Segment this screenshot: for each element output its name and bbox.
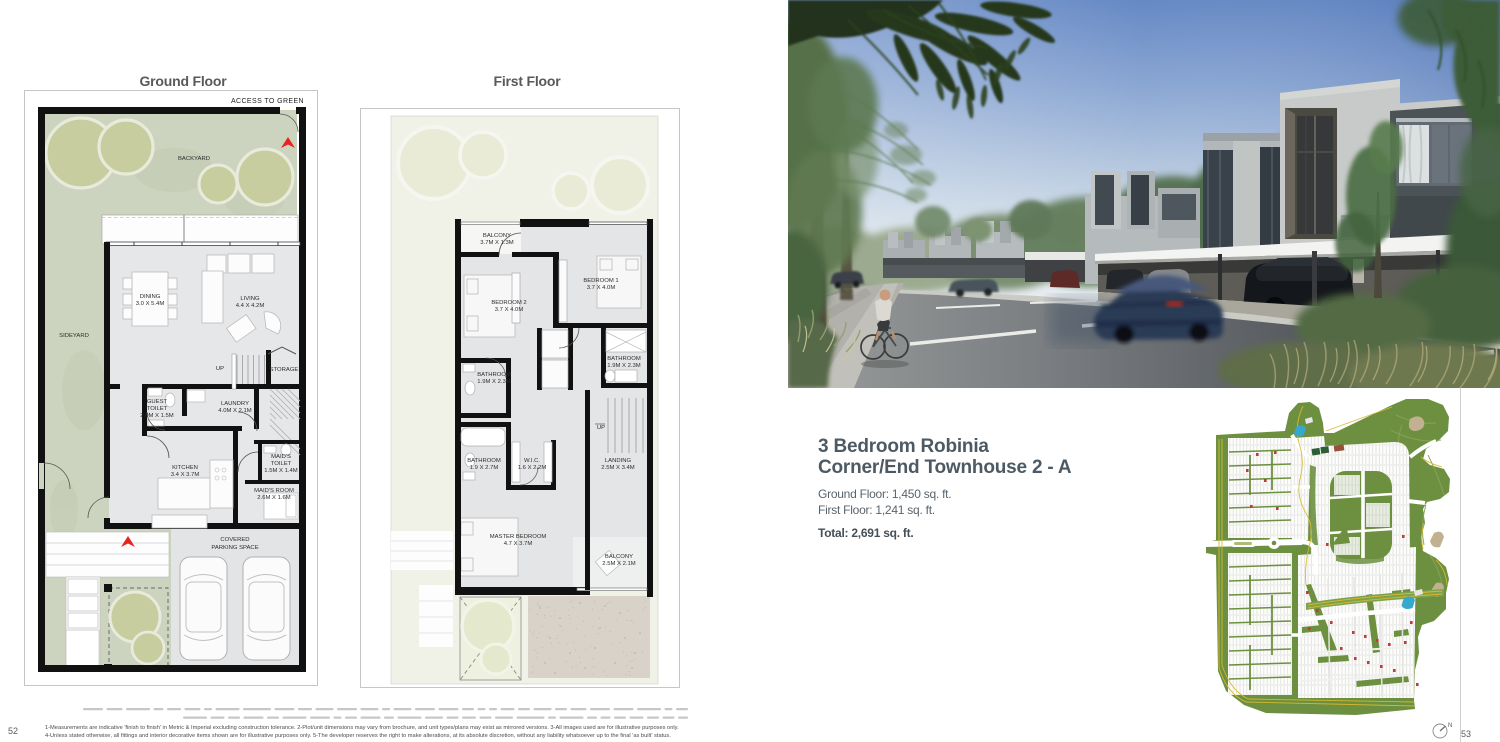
svg-text:4.4 X 4.2M: 4.4 X 4.2M <box>236 303 265 309</box>
svg-text:MAID'S: MAID'S <box>271 454 291 460</box>
svg-text:BATHROOM: BATHROOM <box>607 356 641 362</box>
svg-text:2.6M X 1.6M: 2.6M X 1.6M <box>257 495 290 501</box>
svg-text:3.7 X 4.0M: 3.7 X 4.0M <box>495 307 524 313</box>
svg-text:STORAGE: STORAGE <box>270 367 299 373</box>
svg-text:1.6 X 2.2M: 1.6 X 2.2M <box>518 465 547 471</box>
svg-text:1.9 X 2.7M: 1.9 X 2.7M <box>470 465 499 471</box>
svg-text:SIDEYARD: SIDEYARD <box>59 333 89 339</box>
svg-text:W.I.C.: W.I.C. <box>524 458 540 464</box>
svg-text:TOILET: TOILET <box>147 406 168 412</box>
svg-text:1.9M X 2.3M: 1.9M X 2.3M <box>477 379 510 385</box>
svg-text:GUEST: GUEST <box>147 399 168 405</box>
svg-text:COVERED: COVERED <box>220 537 249 543</box>
svg-text:2.5M X 3.4M: 2.5M X 3.4M <box>601 465 634 471</box>
svg-text:UP: UP <box>597 425 605 431</box>
svg-text:MAID'S ROOM: MAID'S ROOM <box>254 488 294 494</box>
svg-text:4.0M X 2.1M: 4.0M X 2.1M <box>218 408 251 414</box>
svg-text:BALCONY: BALCONY <box>483 233 511 239</box>
svg-text:2.0M X 1.5M: 2.0M X 1.5M <box>140 413 173 419</box>
svg-text:BEDROOM 2: BEDROOM 2 <box>491 300 526 306</box>
svg-text:LANDING: LANDING <box>605 458 632 464</box>
svg-text:PARKING SPACE: PARKING SPACE <box>211 545 258 551</box>
svg-text:DINING: DINING <box>140 294 161 300</box>
svg-text:3.0 X 5.4M: 3.0 X 5.4M <box>136 301 165 307</box>
svg-text:UP: UP <box>216 366 224 372</box>
svg-text:LAUNDRY: LAUNDRY <box>221 401 249 407</box>
svg-text:BATHROOM: BATHROOM <box>477 372 511 378</box>
svg-text:3.4 X 3.7M: 3.4 X 3.7M <box>171 472 200 478</box>
svg-text:3.7 X 4.0M: 3.7 X 4.0M <box>587 285 616 291</box>
svg-text:1.9M X 2.3M: 1.9M X 2.3M <box>607 363 640 369</box>
svg-text:BATHROOM: BATHROOM <box>467 458 501 464</box>
svg-text:3.7M X 1.3M: 3.7M X 1.3M <box>480 240 513 246</box>
svg-text:MASTER BEDROOM: MASTER BEDROOM <box>490 534 547 540</box>
svg-text:BACKYARD: BACKYARD <box>178 156 210 162</box>
svg-text:LIVING: LIVING <box>240 296 260 302</box>
svg-text:4.7 X 3.7M: 4.7 X 3.7M <box>504 541 533 547</box>
svg-text:1.5M X 1.4M: 1.5M X 1.4M <box>264 468 297 474</box>
svg-text:ACCESS TO GREEN: ACCESS TO GREEN <box>231 98 304 105</box>
svg-text:BEDROOM 1: BEDROOM 1 <box>583 278 618 284</box>
svg-text:2.5M X 2.1M: 2.5M X 2.1M <box>602 561 635 567</box>
svg-text:KITCHEN: KITCHEN <box>172 465 198 471</box>
svg-text:BALCONY: BALCONY <box>605 554 633 560</box>
svg-text:TOILET: TOILET <box>271 461 292 467</box>
